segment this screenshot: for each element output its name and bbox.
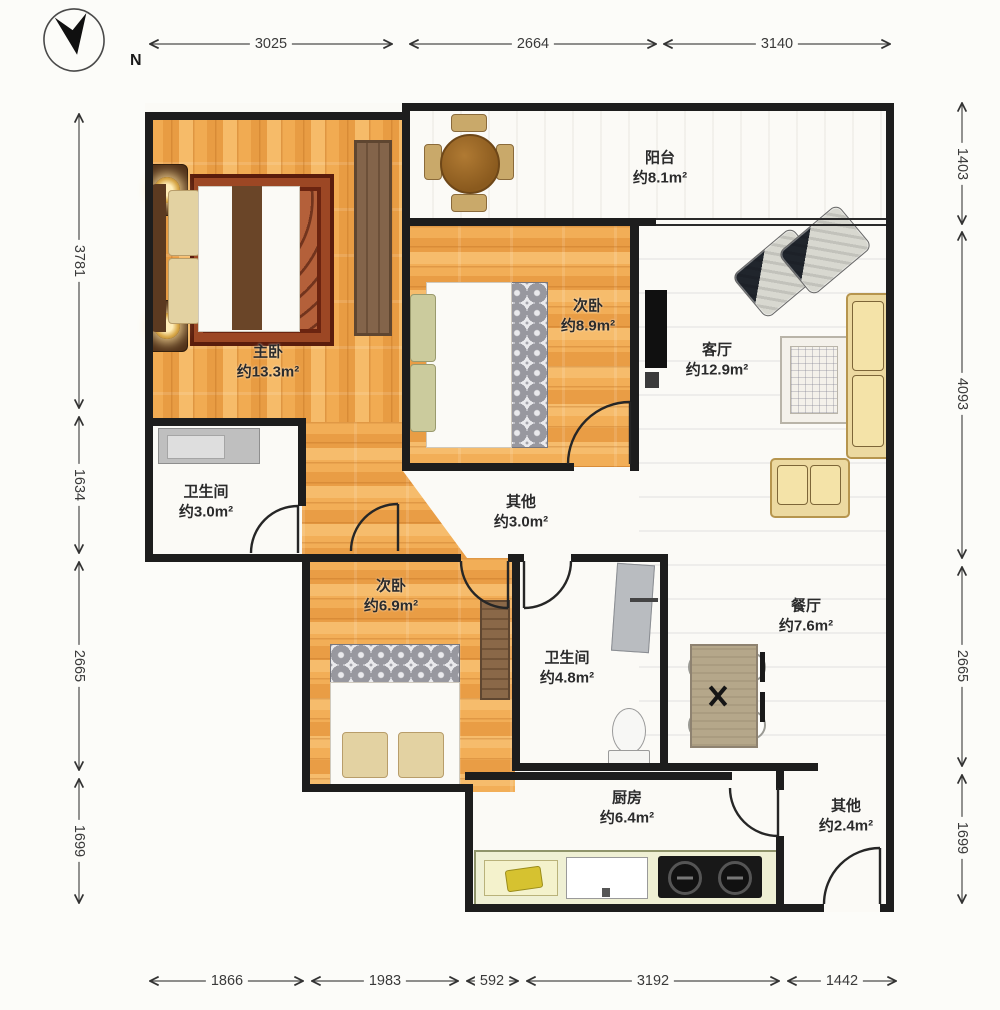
- dim-bottom-3: 592: [475, 973, 509, 989]
- room-name: 阳台: [645, 149, 675, 169]
- pillow: [410, 294, 436, 362]
- wall: [776, 836, 784, 912]
- compass-icon: [40, 5, 108, 75]
- wall: [571, 554, 668, 562]
- room-area: 约8.1m²: [633, 168, 687, 188]
- room-area: 约6.4m²: [600, 808, 654, 828]
- room-name: 次卧: [376, 577, 406, 597]
- outside-mask: [302, 792, 465, 982]
- wall-mark: [760, 692, 765, 722]
- dim-bottom-4: 3192: [632, 973, 674, 989]
- wall: [512, 554, 520, 771]
- wall: [660, 554, 668, 771]
- wall: [302, 554, 461, 562]
- wall: [302, 784, 473, 792]
- balcony-table: [440, 134, 500, 194]
- room-area: 约8.9m²: [561, 316, 615, 336]
- shower-arm: [630, 598, 658, 602]
- dim-bottom-1: 1866: [206, 973, 248, 989]
- wall: [402, 218, 656, 226]
- wall: [512, 763, 668, 771]
- dim-right-3: 2665: [954, 645, 970, 687]
- room-label-kitchen: 厨房 约6.4m²: [600, 789, 654, 828]
- dining-table: [690, 644, 758, 748]
- dim-left-4: 1699: [71, 820, 87, 862]
- room-name: 卫生间: [544, 649, 589, 669]
- dim-bottom-2: 1983: [364, 973, 406, 989]
- faucet: [602, 888, 610, 897]
- outside-mask: [140, 562, 302, 982]
- room-name: 厨房: [612, 789, 642, 809]
- room-label-bathroom2: 卫生间 约4.8m²: [540, 649, 594, 688]
- wardrobe: [354, 140, 392, 336]
- burner: [718, 861, 752, 895]
- table-grid: [790, 346, 838, 414]
- wall: [145, 418, 306, 426]
- balcony-slider-window: [656, 224, 886, 226]
- wall: [776, 770, 784, 790]
- room-name: 主卧: [253, 343, 283, 363]
- room-area: 约12.9m²: [686, 360, 749, 380]
- room-area: 约3.0m²: [179, 502, 233, 522]
- balcony-chair: [451, 194, 487, 212]
- wall-mark: [760, 652, 765, 682]
- wall: [465, 784, 473, 912]
- room-name: 其他: [506, 493, 536, 513]
- dim-left-1: 3781: [71, 240, 87, 282]
- pillow: [168, 258, 200, 324]
- wall: [465, 772, 732, 780]
- wall: [145, 554, 306, 562]
- wall: [630, 218, 639, 471]
- room-area: 约3.0m²: [494, 512, 548, 532]
- balcony-chair: [451, 114, 487, 132]
- room-name: 客厅: [702, 341, 732, 361]
- dim-right-1: 1403: [954, 143, 970, 185]
- room-name: 卫生间: [183, 483, 228, 503]
- wall: [886, 103, 894, 912]
- room-area: 约7.6m²: [779, 616, 833, 636]
- balcony-slider-window: [656, 218, 886, 220]
- room-name: 次卧: [573, 297, 603, 317]
- sofa-cushion: [852, 375, 884, 447]
- wall: [402, 463, 574, 471]
- pillow: [398, 732, 444, 778]
- wall: [465, 904, 824, 912]
- pillow: [410, 364, 436, 432]
- armchair-cushion: [777, 465, 808, 505]
- room-label-dining-room: 餐厅 约7.6m²: [779, 597, 833, 636]
- dim-right-2: 4093: [954, 373, 970, 415]
- room-area: 约13.3m²: [237, 362, 300, 382]
- coffee-table: [780, 336, 848, 424]
- room-label-bedroom1: 次卧 约8.9m²: [561, 297, 615, 336]
- tv-stand: [645, 372, 659, 388]
- wall: [298, 418, 306, 506]
- dim-left-3: 2665: [71, 645, 87, 687]
- room-label-balcony: 阳台 约8.1m²: [633, 149, 687, 188]
- wall: [880, 904, 894, 912]
- bed-runner: [232, 186, 262, 330]
- wall: [145, 112, 153, 562]
- armchair: [770, 458, 850, 518]
- north-arrow-icon: [55, 13, 92, 57]
- dim-top-1: 3025: [250, 36, 292, 52]
- stove: [658, 856, 762, 898]
- room-area: 约4.8m²: [540, 668, 594, 688]
- bedroom2-cabinet: [480, 600, 510, 700]
- room-name: 其他: [831, 797, 861, 817]
- bed-headboard-pattern: [506, 282, 548, 448]
- dim-bottom-5: 1442: [821, 973, 863, 989]
- armchair-cushion: [810, 465, 841, 505]
- sink: [167, 435, 225, 459]
- wall: [402, 103, 410, 471]
- pillow: [342, 732, 388, 778]
- room-label-living-room: 客厅 约12.9m²: [686, 341, 749, 380]
- kitchen-counter: [474, 850, 778, 906]
- tv: [645, 290, 667, 368]
- burner: [668, 861, 702, 895]
- room-label-master-bedroom: 主卧 约13.3m²: [237, 343, 300, 382]
- wall: [402, 103, 894, 111]
- dim-left-2: 1634: [71, 464, 87, 506]
- wall: [660, 763, 818, 771]
- bedroom1-bed: [426, 282, 512, 448]
- sofa-cushion: [852, 301, 884, 371]
- toilet: [612, 708, 646, 754]
- floor-plan: N 3025 2664 3140 3781 1634 2665 1699 140…: [0, 0, 1000, 1010]
- bed-headboard-pattern: [330, 644, 460, 684]
- room-label-bedroom2: 次卧 约6.9m²: [364, 577, 418, 616]
- wall: [145, 112, 406, 120]
- dim-top-3: 3140: [756, 36, 798, 52]
- room-label-entry: 其他 约2.4m²: [819, 797, 873, 836]
- pillow: [168, 190, 200, 256]
- room-name: 餐厅: [791, 597, 821, 617]
- room-area: 约2.4m²: [819, 816, 873, 836]
- room-area: 约6.9m²: [364, 596, 418, 616]
- dim-top-2: 2664: [512, 36, 554, 52]
- room-label-hallway: 其他 约3.0m²: [494, 493, 548, 532]
- wall: [302, 554, 310, 792]
- dim-right-4: 1699: [954, 817, 970, 859]
- compass-north-label: N: [130, 52, 142, 70]
- shower-panel: [611, 563, 655, 653]
- room-label-bathroom1: 卫生间 约3.0m²: [179, 483, 233, 522]
- washbasin: [158, 428, 260, 464]
